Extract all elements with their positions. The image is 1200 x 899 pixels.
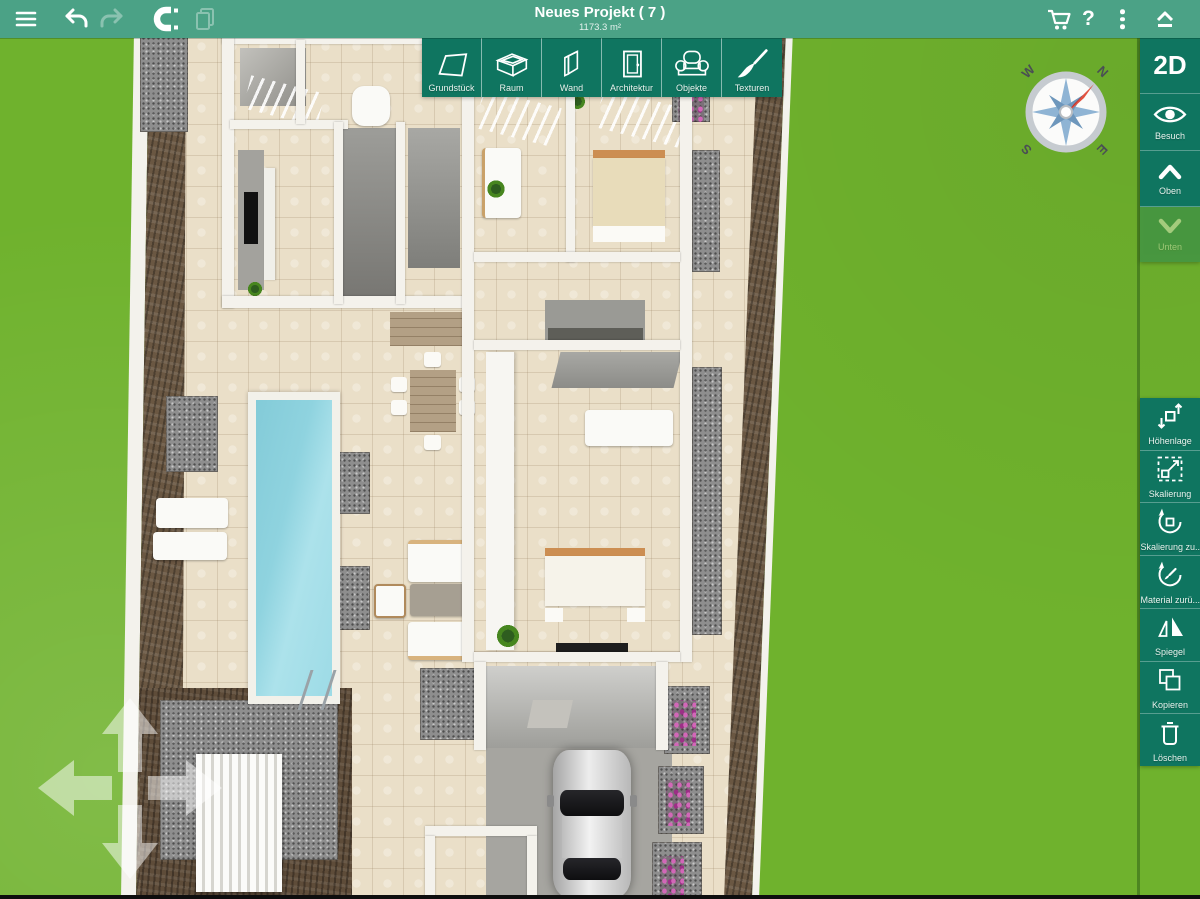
granite-patch[interactable] [166,396,218,472]
table[interactable] [585,410,673,446]
garage-wall[interactable] [656,662,668,750]
paintbrush-icon [730,45,774,83]
delete-button[interactable]: Löschen [1140,714,1200,766]
chevron-down-icon [1154,217,1186,240]
outdoor-sofa[interactable] [408,622,470,660]
project-title: Neues Projekt ( 7 ) [0,5,1200,20]
granite-strip-right[interactable] [692,150,720,272]
edit-tools: Höhenlage Skalierung Skalierung zu... Ma… [1140,398,1200,766]
pan-control[interactable] [30,686,230,891]
dining-chair[interactable] [391,400,407,415]
car-rear-window [563,858,621,880]
pool-water [256,400,332,696]
car-windshield [560,790,624,816]
build-tool-palette: Grundstück Raum Wand Architektur Objekte [422,38,782,97]
house-wall[interactable] [396,122,405,304]
garage-wall[interactable] [474,662,486,750]
room-box-icon [490,45,534,83]
armchair-icon [670,45,714,83]
dining-chair[interactable] [424,352,441,367]
closet-corridor[interactable] [343,128,396,300]
bed-pillows [593,226,665,242]
dining-chair[interactable] [391,377,407,392]
flowers[interactable] [666,780,690,826]
dining-table[interactable] [410,370,456,432]
pan-down-arrow [102,805,158,879]
entry-overhang [552,352,683,388]
stair-hall[interactable] [408,128,460,268]
scale-icon [1155,454,1185,487]
copy-icon [1155,665,1185,698]
elevation-icon [1155,401,1185,434]
house-wall[interactable] [334,122,343,304]
house-wall[interactable] [425,826,537,836]
bathroom-counter [548,328,643,340]
help-icon[interactable]: ? [1082,7,1095,31]
bottom-edge [0,895,1200,899]
wall-icon [550,45,594,83]
tv-screen[interactable] [244,192,258,244]
copy-button[interactable]: Kopieren [1140,662,1200,715]
mirror-icon [1155,612,1185,645]
sun-lounger[interactable] [153,532,227,560]
bathtub[interactable] [352,86,390,126]
cart-icon[interactable] [1046,7,1072,31]
nightstand[interactable] [627,608,645,622]
door-icon [610,45,654,83]
house-wall[interactable] [566,86,575,262]
granite-strip-right[interactable] [692,367,722,635]
mode-2d-button[interactable]: 2D [1140,38,1200,94]
more-icon[interactable] [1120,9,1125,29]
nightstand[interactable] [545,608,563,622]
side-table[interactable] [374,584,406,618]
outdoor-lounger-gray[interactable] [410,584,470,616]
dining-chair[interactable] [424,435,441,450]
floor-up-button[interactable]: Oben [1140,151,1200,207]
palette-button-grundstueck[interactable]: Grundstück [422,38,482,97]
bed[interactable] [593,158,665,226]
granite-patch[interactable] [140,30,188,132]
compass[interactable]: W N S E [1014,58,1118,162]
palette-button-wand[interactable]: Wand [542,38,602,97]
project-area: 1173.3 m² [0,23,1200,33]
house-wall[interactable] [296,40,305,124]
potted-plant[interactable] [485,178,507,200]
flowers[interactable] [660,856,684,896]
visit-button[interactable]: Besuch [1140,94,1200,150]
house-wall[interactable] [222,32,234,308]
plot-icon [430,45,474,83]
eye-icon [1153,103,1187,129]
car-roof [562,816,622,858]
top-toolbar: Neues Projekt ( 7 ) 1173.3 m² ? [0,0,1200,38]
house-wall[interactable] [474,652,680,662]
shelf[interactable] [264,168,275,280]
palette-button-raum[interactable]: Raum [482,38,542,97]
swimming-pool[interactable] [248,392,340,704]
house-wall[interactable] [230,120,348,129]
sun-lounger[interactable] [156,498,228,528]
pan-right-arrow [148,760,222,816]
mirror-button[interactable]: Spiegel [1140,609,1200,662]
garage-mat [527,700,573,728]
granite-patch[interactable] [336,452,370,514]
elevation-button[interactable]: Höhenlage [1140,398,1200,451]
home-design-3d-app: W N S E Neues Projekt ( 7 ) 1173.3 m² ? [0,0,1200,899]
granite-patch[interactable] [420,668,478,740]
pan-up-arrow [102,698,158,772]
reset-scale-button[interactable]: Skalierung zu... [1140,503,1200,556]
palette-button-texturen[interactable]: Texturen [722,38,782,97]
outdoor-counter[interactable] [390,312,468,346]
flowers[interactable] [672,700,696,746]
car-mirror [547,795,554,807]
reset-material-button[interactable]: Material zurü... [1140,556,1200,609]
outdoor-sofa[interactable] [408,540,470,582]
bed[interactable] [593,150,665,158]
house-wall[interactable] [222,296,468,308]
floor-down-button[interactable]: Unten [1140,207,1200,262]
house-wall[interactable] [462,32,474,662]
palette-button-architektur[interactable]: Architektur [602,38,662,97]
collapse-toolbar-icon[interactable] [1152,8,1178,30]
pan-left-arrow [38,760,112,816]
house-wall[interactable] [474,340,680,350]
reset-material-icon [1155,560,1185,593]
potted-plant[interactable] [494,622,522,650]
house-wall[interactable] [680,32,692,662]
house-wall[interactable] [474,252,680,262]
bed-headboard [545,548,645,556]
chevron-up-icon [1154,161,1186,184]
double-bed[interactable] [545,556,645,606]
palette-button-objekte[interactable]: Objekte [662,38,722,97]
scale-button[interactable]: Skalierung [1140,451,1200,504]
car[interactable] [553,750,631,898]
house-wall[interactable] [527,836,537,899]
house-wall[interactable] [425,836,435,899]
view-controls: 2D Besuch Oben Unten [1140,38,1200,262]
trash-icon [1155,718,1185,751]
car-mirror [630,795,637,807]
reset-scale-icon [1155,507,1185,540]
project-title-block[interactable]: Neues Projekt ( 7 ) 1173.3 m² [0,5,1200,33]
closet-row[interactable] [486,352,514,650]
